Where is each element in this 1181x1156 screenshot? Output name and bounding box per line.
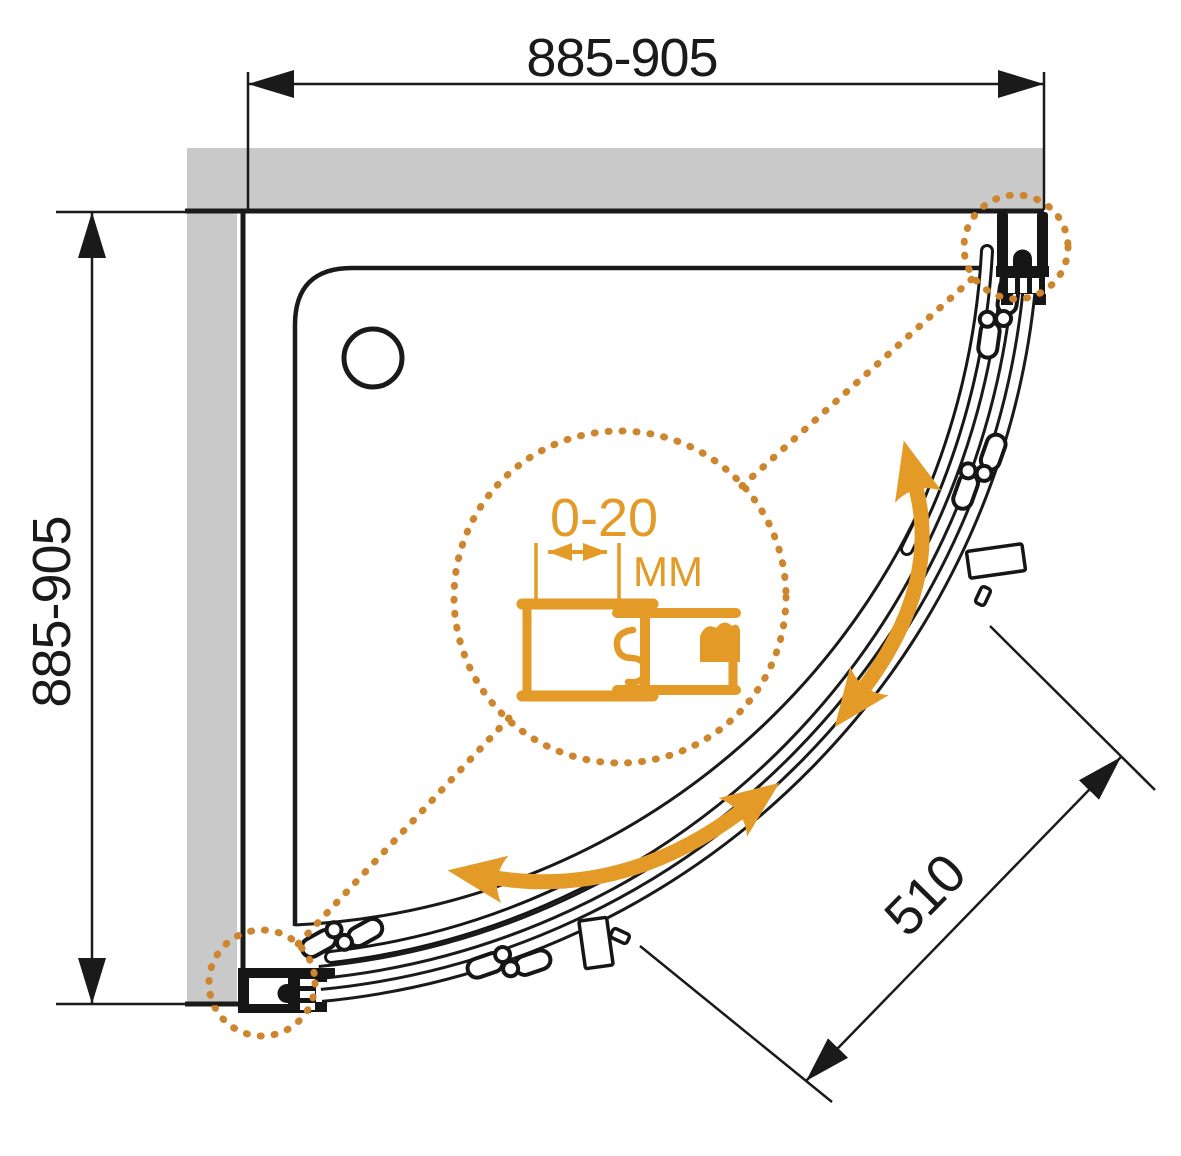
- adjustment-unit-text: MM: [633, 548, 703, 595]
- roller-carriage-bottom-1: [464, 933, 553, 992]
- shower-tray: [295, 268, 986, 926]
- door-handle-bottom: [579, 917, 613, 968]
- entry-dimension: 510: [640, 626, 1155, 1102]
- installation-diagram: 0-20 MM 885-905 885-905 510: [0, 0, 1181, 1156]
- page: { "meta": { "title": "Quadrant shower en…: [0, 0, 1181, 1156]
- top-wall: [187, 148, 1044, 211]
- left-wall: [187, 148, 237, 1005]
- height-dim-text: 885-905: [22, 516, 82, 707]
- door-handle-right-latch: [975, 586, 992, 607]
- door-handle-bottom-latch: [610, 928, 631, 945]
- door-handle-right: [966, 544, 1025, 579]
- wall-profile-bottom-left: [238, 968, 335, 1013]
- callout-leader-top-right: [742, 278, 973, 486]
- width-dim-text: 885-905: [526, 28, 717, 88]
- adjustment-detail: 0-20 MM: [522, 488, 740, 696]
- torn-wall-block: [700, 622, 740, 662]
- entry-ext-upper: [990, 626, 1155, 790]
- entry-dim-line: [806, 757, 1121, 1081]
- callout-leader-bottom-left: [298, 718, 509, 944]
- entry-ext-lower: [640, 946, 832, 1102]
- adjustment-range-text: 0-20: [550, 488, 658, 548]
- drain-icon: [344, 329, 402, 387]
- profile-cross-section: [522, 604, 740, 696]
- entry-dim-text: 510: [873, 843, 977, 947]
